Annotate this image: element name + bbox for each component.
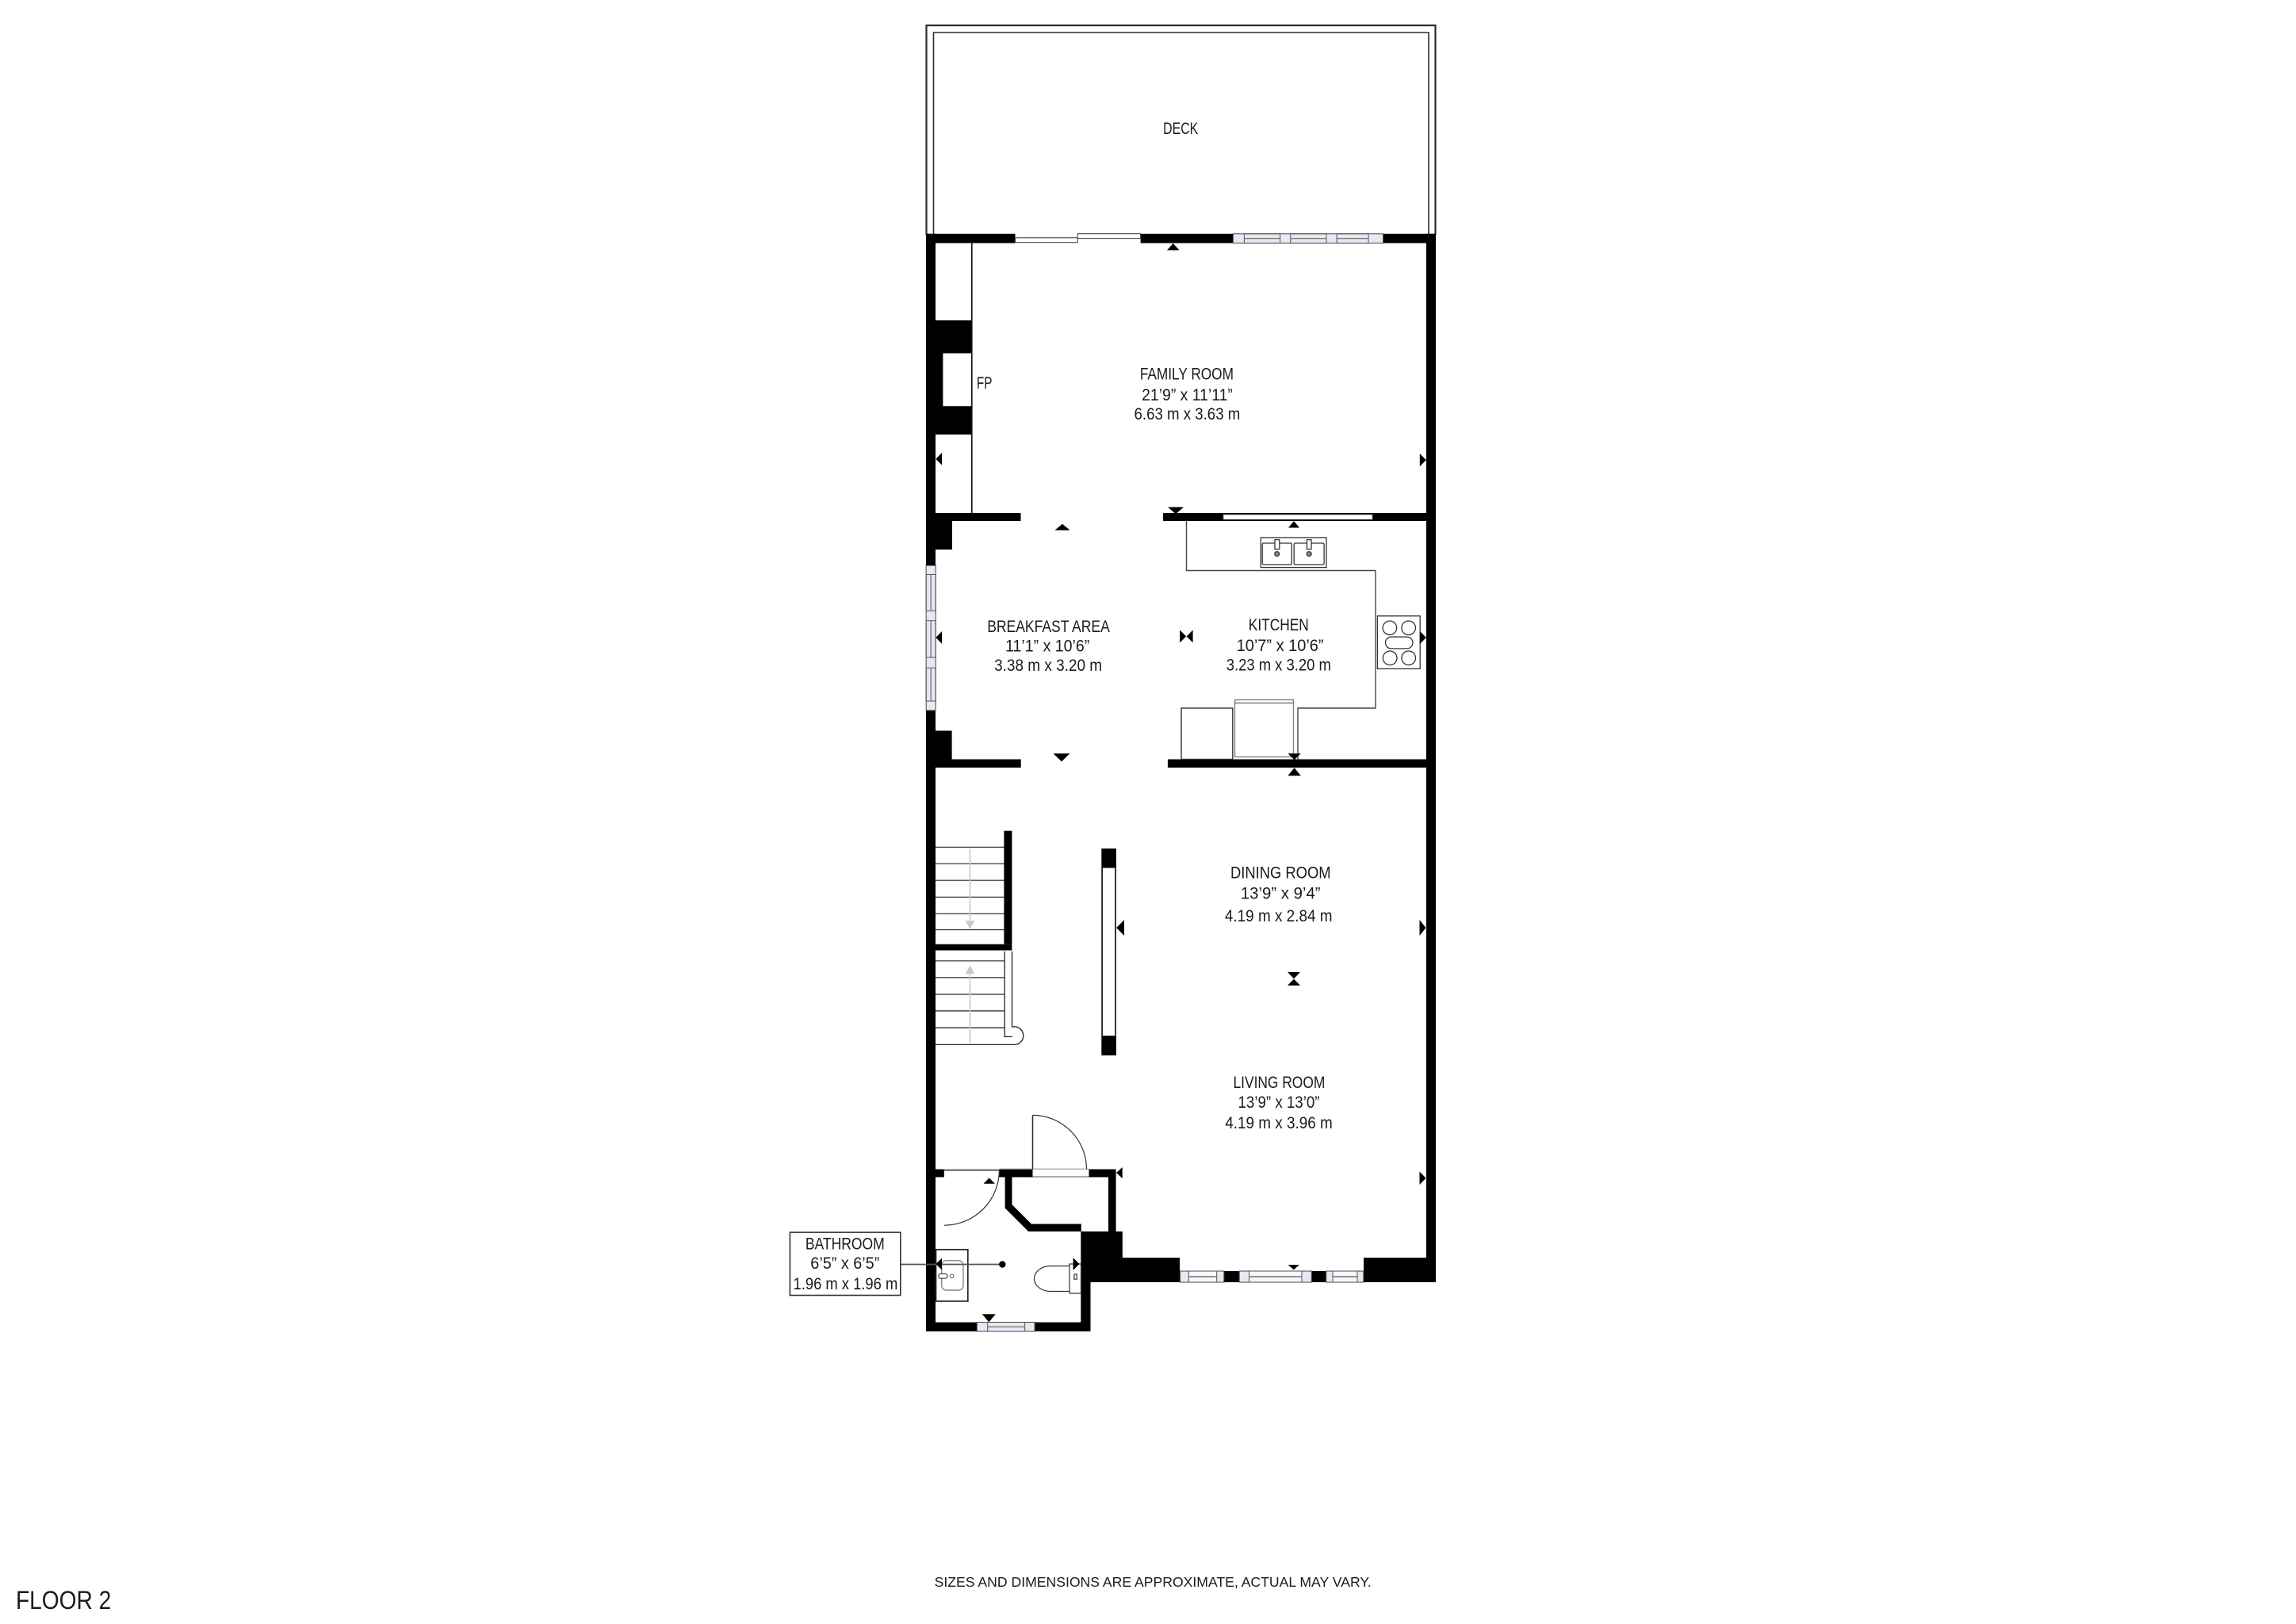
svg-text:10’7” x 10’6”: 10’7” x 10’6”: [1237, 636, 1324, 655]
svg-text:DINING ROOM: DINING ROOM: [1230, 864, 1331, 883]
svg-text:1.96 m x 1.96 m: 1.96 m x 1.96 m: [794, 1274, 898, 1293]
svg-text:SIZES AND DIMENSIONS ARE APPRO: SIZES AND DIMENSIONS ARE APPROXIMATE, AC…: [935, 1574, 1372, 1590]
svg-text:DECK: DECK: [1163, 119, 1199, 138]
svg-text:FP: FP: [977, 373, 993, 393]
svg-text:3.23 m x 3.20 m: 3.23 m x 3.20 m: [1226, 656, 1331, 675]
svg-text:KITCHEN: KITCHEN: [1249, 615, 1309, 634]
svg-text:BREAKFAST AREA: BREAKFAST AREA: [987, 617, 1110, 636]
svg-text:4.19 m x 3.96 m: 4.19 m x 3.96 m: [1225, 1113, 1333, 1132]
svg-text:FLOOR 2: FLOOR 2: [16, 1585, 111, 1614]
svg-text:11’1” x 10’6”: 11’1” x 10’6”: [1005, 636, 1089, 655]
svg-text:21’9” x 11’11”: 21’9” x 11’11”: [1142, 385, 1233, 404]
svg-text:3.38 m x 3.20 m: 3.38 m x 3.20 m: [994, 656, 1102, 675]
svg-text:4.19 m x 2.84 m: 4.19 m x 2.84 m: [1225, 906, 1333, 925]
svg-text:FAMILY ROOM: FAMILY ROOM: [1140, 365, 1234, 384]
svg-text:13’9” x 13’0”: 13’9” x 13’0”: [1238, 1093, 1320, 1112]
svg-text:6’5” x 6’5”: 6’5” x 6’5”: [810, 1254, 879, 1273]
svg-text:BATHROOM: BATHROOM: [806, 1234, 885, 1253]
svg-text:6.63 m x 3.63 m: 6.63 m x 3.63 m: [1135, 404, 1241, 423]
svg-text:LIVING ROOM: LIVING ROOM: [1234, 1073, 1326, 1092]
svg-text:13’9” x 9’4”: 13’9” x 9’4”: [1241, 884, 1321, 903]
